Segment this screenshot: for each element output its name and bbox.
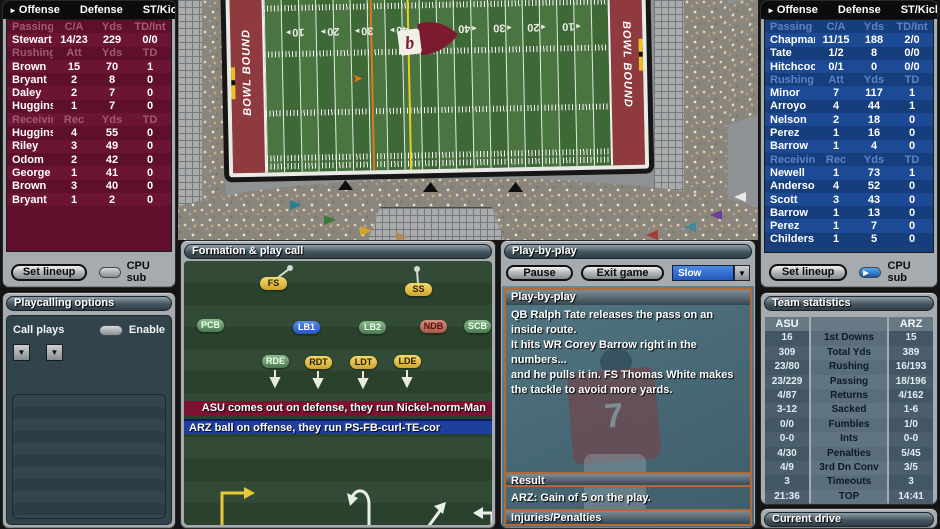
player-pill[interactable]: LB1 [293, 321, 320, 334]
endzone-right: BOWL BOUND [607, 0, 645, 165]
table-row: 0/0 Fumbles 1/0 [765, 418, 933, 432]
away-team-abbr: ARZ [889, 317, 933, 331]
yard-number: ◂20▸ [527, 21, 546, 33]
yard-number: ◂10▸ [286, 26, 305, 38]
active-tab-arrow: ► [9, 6, 17, 15]
player-pill[interactable]: RDE [262, 355, 289, 368]
table-row: 16 1st Downs 15 [765, 331, 933, 345]
tab-offense[interactable]: ►Offense [761, 4, 824, 16]
midfield-logo: b [395, 18, 462, 61]
defense-banner: ASU comes out on defense, they run Nicke… [184, 401, 492, 416]
injuries-section-header: Injuries/Penalties [506, 509, 750, 524]
game-window: BOWL BOUND BOWL BOUND ➤ [0, 0, 940, 529]
home-stat-table: PassingC/A YdsTD/Int Stewart14/23 2290/0… [6, 19, 172, 252]
table-row: Hitchcock0/1 00/0 [765, 60, 933, 73]
table-row: Odom2 420 [7, 153, 171, 166]
formation-routes [184, 261, 492, 525]
pennant-flag [360, 226, 372, 236]
football-field: BOWL BOUND BOWL BOUND ➤ [220, 0, 655, 182]
yard-number: ◂30▸ [493, 21, 512, 33]
press-box [368, 207, 504, 240]
table-row: 4/87 Returns 4/162 [765, 389, 933, 403]
formation-header: Formation & play call [184, 244, 492, 259]
table-row: Scott3 430 [765, 193, 933, 206]
field-border: BOWL BOUND BOWL BOUND ➤ [225, 0, 649, 177]
table-row: PassingC/A YdsTD/Int [7, 20, 171, 33]
active-tab-arrow: ► [767, 6, 775, 15]
table-row: 23/229 Passing 18/196 [765, 375, 933, 389]
table-row: Newell1 731 [765, 166, 933, 179]
play-type-dropdown[interactable]: ▼ [13, 344, 30, 361]
home-box-score-panel: ►Offense Defense ST/Kick PassingC/A YdsT… [2, 0, 176, 288]
team-statistics-panel: Team statistics ASU ARZ 16 1st Downs 15 … [760, 292, 938, 505]
table-row: 3-12 Sacked 1-6 [765, 403, 933, 417]
offense-banner: ARZ ball on offense, they run PS-FB-curl… [184, 419, 492, 434]
pennant-flag [646, 230, 658, 240]
table-row: Perez1 160 [765, 126, 933, 139]
table-row: Childers1 50 [765, 233, 933, 246]
play-by-play-header: Play-by-play [504, 244, 752, 259]
table-row: 4/30 Penalties 5/45 [765, 447, 933, 461]
table-row: Riley3 490 [7, 140, 171, 153]
table-row: Brown15 701 [7, 60, 171, 73]
pennant-flag [684, 222, 696, 232]
playcalling-panel: Playcalling options Call plays Enable ▼ … [2, 292, 176, 529]
table-row: Stewart14/23 2290/0 [7, 33, 171, 46]
set-lineup-button[interactable]: Set lineup [11, 264, 87, 281]
set-lineup-button[interactable]: Set lineup [769, 264, 847, 281]
cpu-sub-label: CPU sub [887, 260, 929, 284]
player-pill[interactable]: PCB [197, 319, 224, 332]
table-row: Perez1 70 [765, 219, 933, 232]
away-stat-table: PassingC/A YdsTD/Int Chapman11/15 1882/0… [764, 19, 934, 253]
table-row: Anderson4 520 [765, 180, 933, 193]
player-pill[interactable]: LDE [394, 355, 421, 368]
pause-button[interactable]: Pause [506, 265, 573, 281]
tab-defense[interactable]: Defense [832, 4, 887, 16]
home-stats-tabs: ►Offense Defense ST/Kick [3, 1, 175, 19]
table-row: 0-0 Ints 0-0 [765, 432, 933, 446]
table-row: 3 Timeouts 3 [765, 475, 933, 489]
sideline-gate-left [231, 67, 236, 99]
endzone-text: BOWL BOUND [620, 20, 634, 107]
chevron-down-icon[interactable]: ▼ [13, 344, 30, 361]
tab-offense[interactable]: ►Offense [3, 4, 66, 16]
chevron-down-icon[interactable]: ▼ [46, 344, 63, 361]
yard-number: ◂10▸ [562, 20, 581, 32]
table-row: 4/9 3rd Dn Conv 3/5 [765, 461, 933, 475]
field-turf: BOWL BOUND BOWL BOUND ➤ [229, 0, 645, 173]
table-row: Bryant1 20 [7, 193, 171, 206]
player-pill[interactable]: NDB [420, 320, 447, 333]
result-section-header: Result [506, 472, 750, 487]
table-row: Tate1/2 80/0 [765, 47, 933, 60]
away-stats-tabs: ►Offense Defense ST/Kick [761, 1, 937, 19]
table-row: Nelson2 180 [765, 113, 933, 126]
table-row: Barrow1 40 [765, 140, 933, 153]
table-row: PassingC/A YdsTD/Int [765, 20, 933, 33]
formation-field: FS SS PCB LB1 LB2 NDB SCB RDE RDT [184, 261, 492, 525]
table-row: 21:36 TOP 14:41 [765, 490, 933, 504]
formation-panel: Formation & play call [180, 240, 496, 529]
play-log-box: Play-by-play QB Ralph Tate releases the … [504, 288, 752, 526]
log-section-header: Play-by-play [506, 290, 750, 305]
away-box-score-panel: ►Offense Defense ST/Kick PassingC/A YdsT… [760, 0, 938, 288]
left-stand-structure [178, 0, 202, 208]
log-line: It hits WR Corey Barrow right in the num… [511, 338, 745, 368]
enable-toggle[interactable] [99, 325, 123, 336]
table-row: Chapman11/15 1882/0 [765, 33, 933, 46]
table-row: Minor7 1171 [765, 86, 933, 99]
table-row: Barrow1 130 [765, 206, 933, 219]
table-row: 309 Total Yds 389 [765, 346, 933, 360]
ball-marker-icon: ➤ [352, 71, 363, 87]
team-statistics-table: ASU ARZ 16 1st Downs 15 309 Total Yds 3 [765, 317, 933, 504]
play-log-text: QB Ralph Tate releases the pass on an in… [506, 305, 750, 472]
player-pill[interactable]: SCB [464, 320, 491, 333]
speed-value[interactable]: Slow [672, 265, 734, 281]
player-pill[interactable]: LB2 [359, 321, 386, 334]
table-row: Arroyo4 441 [765, 100, 933, 113]
playcalling-header: Playcalling options [6, 296, 172, 311]
yard-number: ◂30▸ [355, 24, 374, 36]
play-list[interactable] [12, 394, 166, 519]
table-row: Huggins1 70 [7, 100, 171, 113]
team-statistics-header: Team statistics [764, 296, 934, 311]
tab-defense[interactable]: Defense [74, 4, 129, 16]
table-row: RushingAtt YdsTD [765, 73, 933, 86]
pennant-flag [710, 210, 722, 220]
table-row: ReceivingRec YdsTD [7, 113, 171, 126]
home-lineup-controls: Set lineup CPU sub [3, 257, 175, 287]
hash-marks [264, 0, 608, 12]
table-row: ReceivingRec YdsTD [765, 153, 933, 166]
exit-game-button[interactable]: Exit game [581, 265, 664, 281]
table-row: RushingAtt YdsTD [7, 47, 171, 60]
call-plays-label: Call plays [13, 324, 64, 336]
player-pill[interactable]: RDT [305, 356, 332, 369]
cpu-sub-label: CPU sub [127, 260, 167, 284]
pennant-flag [324, 215, 336, 225]
log-line: QB Ralph Tate releases the pass on an in… [511, 308, 745, 338]
game-controls: Pause Exit game Slow ▼ [501, 262, 755, 284]
cpu-sub-toggle[interactable] [99, 267, 120, 278]
current-drive-header: Current drive [764, 512, 934, 527]
pennant-flag [734, 192, 746, 202]
pennant-flag [396, 232, 408, 240]
tab-st-kick[interactable]: ST/Kick [137, 4, 176, 16]
player-pill[interactable]: SS [405, 283, 432, 296]
away-lineup-controls: Set lineup ▶ CPU sub [761, 257, 937, 287]
table-row: George1 410 [7, 166, 171, 179]
stadium-view: BOWL BOUND BOWL BOUND ➤ [178, 0, 758, 240]
sideline-gate-right [638, 39, 643, 71]
table-row: Bryant2 80 [7, 73, 171, 86]
current-drive-panel: Current drive [760, 508, 938, 529]
home-team-abbr: ASU [765, 317, 809, 331]
right-corner-crowd [722, 0, 758, 126]
play-by-play-panel: Play-by-play Pause Exit game Slow ▼ 7 Pl… [500, 240, 756, 529]
chevron-down-icon[interactable]: ▼ [734, 265, 750, 281]
team-stat-rows: 16 1st Downs 15 309 Total Yds 389 23/80 … [765, 331, 933, 504]
player-pill[interactable]: FS [260, 277, 287, 290]
enable-label: Enable [129, 324, 165, 336]
table-row: Daley2 70 [7, 86, 171, 99]
player-pill[interactable]: LDT [350, 356, 377, 369]
log-line: and he pulls it in. FS Thomas White make… [511, 368, 745, 398]
pennant-flag [290, 200, 302, 210]
endzone-text: BOWL BOUND [240, 28, 254, 115]
hash-marks [266, 103, 610, 116]
tab-st-kick[interactable]: ST/Kick [895, 4, 938, 16]
cpu-sub-toggle[interactable]: ▶ [859, 267, 881, 278]
table-row: Huggins4 550 [7, 126, 171, 139]
yard-number: ◂20▸ [321, 25, 340, 37]
table-header-row: ASU ARZ [765, 317, 933, 331]
table-row: Brown3 400 [7, 180, 171, 193]
right-stand-structure [654, 0, 684, 210]
speed-dropdown[interactable]: Slow ▼ [672, 265, 750, 281]
table-row: 23/80 Rushing 16/193 [765, 360, 933, 374]
play-call-dropdown[interactable]: ▼ [46, 344, 63, 361]
playcalling-body: Call plays Enable ▼ ▼ [6, 315, 172, 525]
result-text: ARZ: Gain of 5 on the play. [506, 487, 750, 509]
